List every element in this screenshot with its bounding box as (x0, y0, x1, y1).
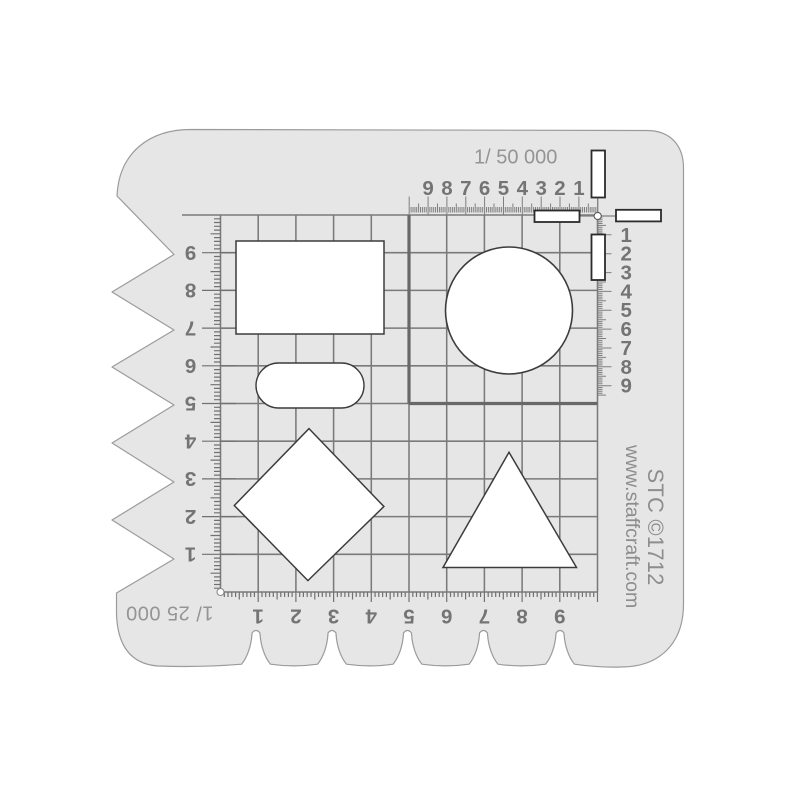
svg-text:2: 2 (554, 177, 565, 200)
svg-text:2: 2 (290, 605, 301, 628)
svg-text:5: 5 (403, 605, 414, 628)
svg-text:1/ 50 000: 1/ 50 000 (474, 147, 557, 169)
svg-text:4: 4 (184, 429, 196, 452)
svg-text:8: 8 (185, 279, 196, 302)
svg-text:2: 2 (185, 505, 196, 528)
svg-text:3: 3 (535, 177, 546, 200)
svg-text:8: 8 (441, 177, 452, 200)
svg-text:3: 3 (328, 605, 339, 628)
svg-text:6: 6 (479, 177, 490, 200)
svg-text:3: 3 (185, 467, 196, 490)
svg-text:4: 4 (517, 177, 529, 200)
svg-text:9: 9 (185, 241, 196, 264)
svg-text:7: 7 (479, 605, 490, 628)
svg-text:1: 1 (573, 177, 584, 200)
svg-text:4: 4 (365, 605, 377, 628)
svg-text:7: 7 (460, 177, 471, 200)
svg-text:9: 9 (621, 375, 632, 398)
svg-text:9: 9 (422, 177, 433, 200)
svg-text:8: 8 (516, 605, 527, 628)
svg-text:1: 1 (185, 543, 196, 566)
svg-text:9: 9 (554, 605, 565, 628)
svg-text:7: 7 (185, 316, 196, 339)
svg-text:STC ©1712: STC ©1712 (643, 469, 668, 586)
svg-text:1: 1 (252, 605, 263, 628)
svg-text:6: 6 (185, 354, 196, 377)
svg-text:www.staffcraft.com: www.staffcraft.com (621, 444, 643, 608)
svg-text:5: 5 (185, 392, 196, 415)
svg-text:1/ 25 000: 1/ 25 000 (126, 602, 214, 624)
svg-text:6: 6 (441, 605, 452, 628)
svg-text:5: 5 (498, 177, 509, 200)
